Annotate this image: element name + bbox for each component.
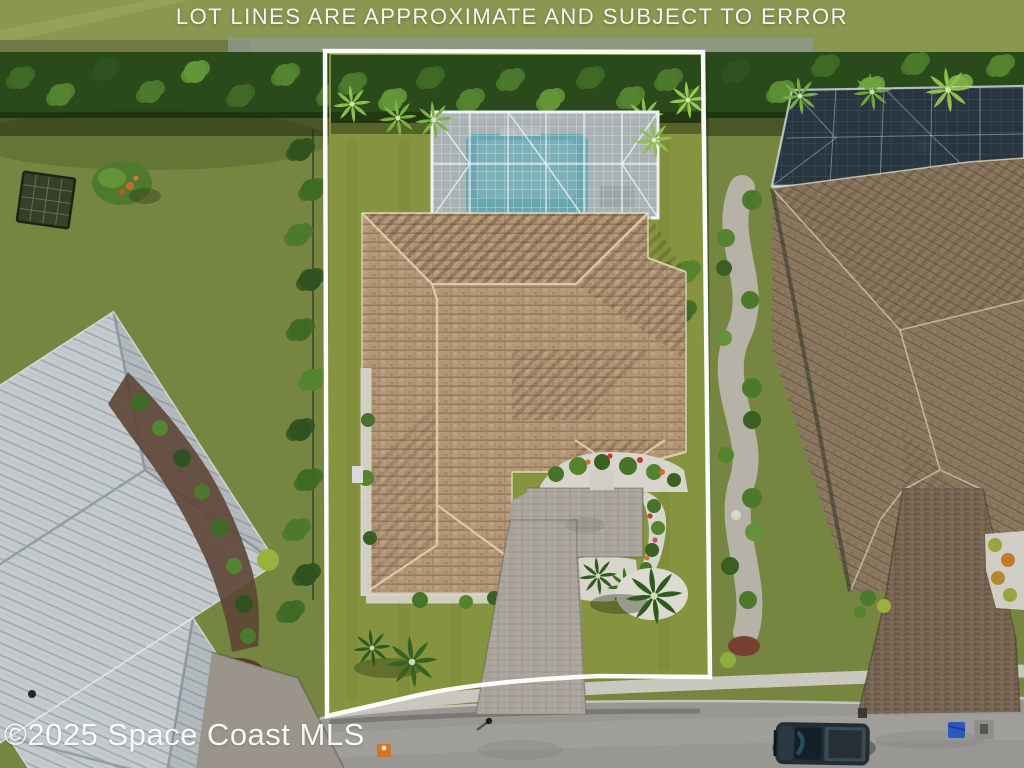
road-patch [875, 731, 985, 749]
orange-marker [377, 744, 391, 757]
boulder [731, 510, 741, 520]
aerial-listing-photo: LOT LINES ARE APPROXIMATE AND SUBJECT TO… [0, 0, 1024, 768]
truck-hood [778, 726, 794, 760]
trash-bin [974, 720, 994, 739]
soccer-goal [17, 172, 75, 229]
red-shrub [728, 636, 760, 656]
disclaimer-text: LOT LINES ARE APPROXIMATE AND SUBJECT TO… [0, 4, 1024, 30]
entry-walk [590, 470, 614, 490]
recycle-bin [948, 722, 965, 738]
pickup-truck [773, 722, 870, 766]
bright-bush [257, 549, 279, 571]
subject-pool-enclosure [415, 101, 673, 218]
screen-mesh [432, 112, 658, 218]
mls-watermark: ©2025 Space Coast MLS [4, 717, 365, 753]
yard-lamp [28, 690, 36, 698]
ac-unit [352, 466, 363, 483]
scene-canvas [0, 0, 1024, 768]
road-patch [478, 740, 562, 760]
mailbox [858, 708, 867, 718]
